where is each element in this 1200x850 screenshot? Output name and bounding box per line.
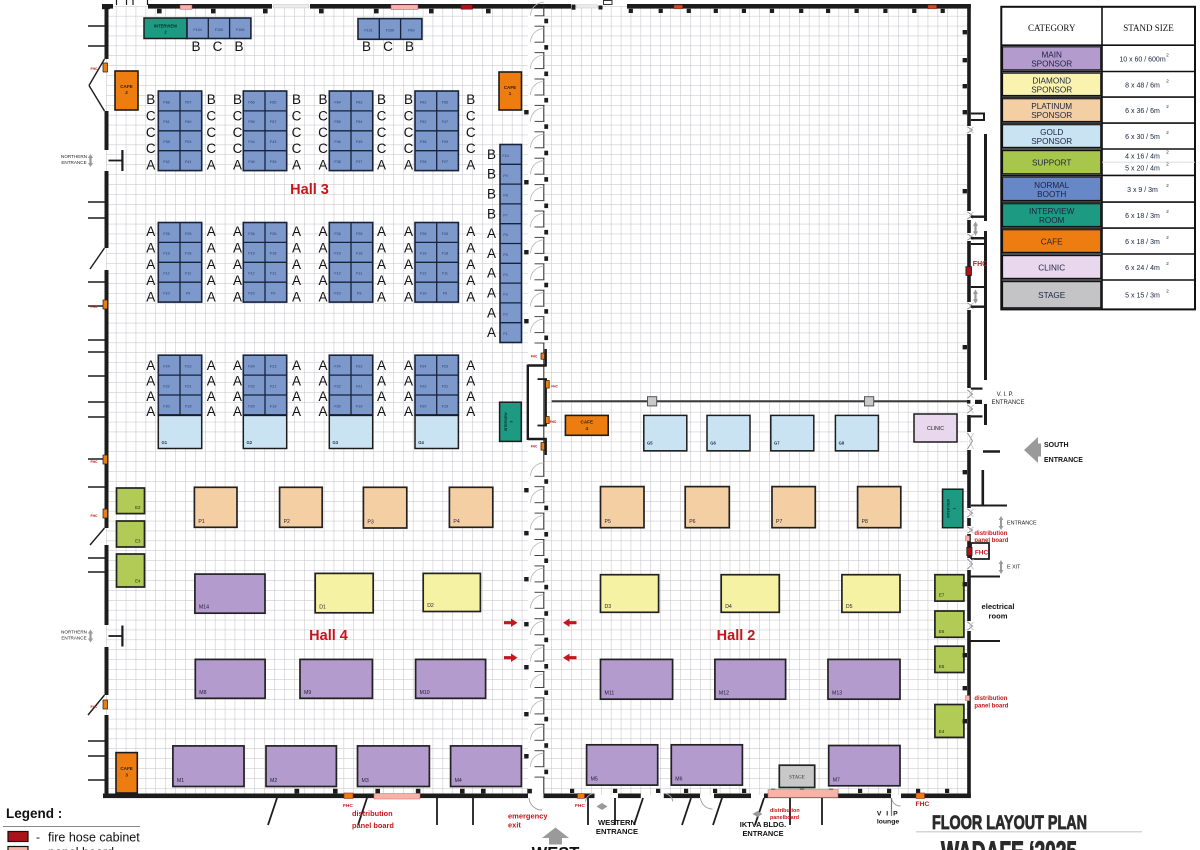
svg-text:F18: F18 — [442, 252, 448, 256]
svg-text:F25: F25 — [442, 232, 448, 236]
svg-text:fire hose cabinet: fire hose cabinet — [48, 831, 140, 845]
svg-text:A: A — [146, 290, 155, 305]
svg-text:Legend :: Legend : — [6, 806, 62, 821]
svg-text:A: A — [404, 257, 413, 272]
svg-text:C: C — [233, 108, 243, 123]
svg-text:INTERVIEW: INTERVIEW — [947, 498, 951, 518]
svg-text:A: A — [318, 224, 327, 239]
svg-text:F18: F18 — [356, 252, 362, 256]
svg-text:A: A — [377, 257, 386, 272]
svg-text:ENTRANCE: ENTRANCE — [742, 829, 783, 838]
svg-text:F12: F12 — [420, 272, 426, 276]
svg-text:A: A — [466, 257, 475, 272]
svg-text:F19: F19 — [270, 404, 276, 408]
svg-text:A: A — [466, 404, 475, 419]
svg-text:A: A — [487, 266, 496, 281]
svg-text:V. I. P.: V. I. P. — [997, 392, 1014, 398]
svg-text:Hall 3: Hall 3 — [290, 182, 329, 198]
svg-text:A: A — [318, 257, 327, 272]
svg-text:F26: F26 — [334, 232, 340, 236]
svg-text:A: A — [404, 404, 413, 419]
svg-text:ENTRANCE: ENTRANCE — [61, 160, 86, 165]
svg-text:A: A — [207, 224, 216, 239]
svg-text:F37: F37 — [356, 160, 362, 164]
svg-text:ENTRANCE: ENTRANCE — [991, 400, 1024, 406]
svg-text:B: B — [487, 147, 496, 162]
svg-text:F18: F18 — [270, 252, 276, 256]
svg-text:CAFE: CAFE — [120, 84, 133, 89]
svg-text:C: C — [377, 125, 387, 140]
svg-text:panel board: panel board — [974, 704, 1008, 710]
svg-text:exit: exit — [508, 821, 521, 830]
svg-text:A: A — [404, 224, 413, 239]
svg-text:F19: F19 — [420, 252, 426, 256]
svg-text:F21: F21 — [185, 384, 191, 388]
svg-text:CLINIC: CLINIC — [1038, 264, 1065, 273]
svg-text:A: A — [233, 257, 242, 272]
svg-text:C: C — [377, 141, 387, 156]
svg-text:BOOTH: BOOTH — [1037, 190, 1066, 199]
svg-text:Hall 2: Hall 2 — [717, 628, 756, 644]
svg-text:A: A — [404, 373, 413, 388]
svg-text:4 x 16 / 4m: 4 x 16 / 4m — [1125, 154, 1160, 161]
svg-text:distribution: distribution — [352, 809, 393, 818]
svg-text:A: A — [404, 158, 413, 173]
svg-text:B: B — [377, 92, 386, 107]
svg-text:A: A — [292, 389, 301, 404]
svg-text:A: A — [292, 373, 301, 388]
svg-text:F11: F11 — [185, 272, 191, 276]
svg-text:electrical: electrical — [982, 602, 1015, 611]
svg-text:CAFE: CAFE — [504, 85, 517, 90]
svg-text:F5: F5 — [503, 253, 507, 257]
svg-text:F6: F6 — [503, 233, 507, 237]
svg-text:A: A — [318, 404, 327, 419]
svg-text:FHC: FHC — [551, 385, 558, 389]
svg-text:A: A — [487, 286, 496, 301]
svg-text:F63: F63 — [356, 100, 362, 104]
svg-text:F105: F105 — [215, 28, 223, 32]
svg-text:F19: F19 — [185, 404, 191, 408]
svg-text:P6: P6 — [689, 519, 695, 525]
svg-text:M3: M3 — [362, 778, 369, 784]
svg-text:B: B — [487, 206, 496, 221]
svg-text:B: B — [146, 92, 155, 107]
svg-text:M8: M8 — [199, 690, 206, 696]
svg-text:F9: F9 — [503, 174, 507, 178]
svg-text:F20: F20 — [163, 404, 169, 408]
svg-text:F1: F1 — [503, 332, 507, 336]
svg-text:F9: F9 — [186, 292, 190, 296]
svg-text:MAIN: MAIN — [1041, 50, 1062, 59]
svg-text:distribution: distribution — [974, 696, 1007, 702]
svg-text:ROOM: ROOM — [1039, 216, 1065, 225]
svg-text:C: C — [233, 141, 243, 156]
svg-text:IKTVA BLDG.: IKTVA BLDG. — [740, 820, 786, 829]
svg-text:NORMAL: NORMAL — [1034, 181, 1069, 190]
svg-text:ENTRANCE: ENTRANCE — [1007, 521, 1037, 527]
svg-text:C: C — [233, 125, 243, 140]
svg-text:F24: F24 — [163, 365, 169, 369]
svg-text:SPONSOR: SPONSOR — [1031, 137, 1072, 146]
svg-text:FHC: FHC — [91, 514, 99, 518]
svg-text:B: B — [234, 39, 243, 54]
svg-text:A: A — [466, 240, 475, 255]
svg-text:F55: F55 — [334, 120, 340, 124]
svg-text:B: B — [466, 92, 475, 107]
svg-text:M6: M6 — [675, 777, 682, 783]
svg-text:F9: F9 — [443, 292, 447, 296]
svg-text:F10: F10 — [248, 292, 254, 296]
svg-text:F52: F52 — [420, 120, 426, 124]
svg-text:F56: F56 — [442, 100, 448, 104]
svg-text:A: A — [318, 389, 327, 404]
svg-text:F23: F23 — [442, 365, 448, 369]
svg-text:F99: F99 — [408, 29, 414, 33]
svg-text:A: A — [207, 373, 216, 388]
svg-text:F101: F101 — [364, 29, 372, 33]
svg-text:F43: F43 — [270, 140, 276, 144]
svg-text:B: B — [318, 92, 327, 107]
svg-text:F26: F26 — [248, 232, 254, 236]
svg-text:2: 2 — [125, 90, 128, 95]
svg-text:A: A — [377, 290, 386, 305]
svg-text:A: A — [292, 290, 301, 305]
svg-text:distribution: distribution — [770, 808, 800, 814]
svg-text:F19: F19 — [442, 404, 448, 408]
svg-text:A: A — [377, 273, 386, 288]
svg-text:3: 3 — [510, 421, 514, 423]
svg-text:C: C — [404, 108, 414, 123]
svg-text:A: A — [292, 257, 301, 272]
svg-text:B: B — [404, 92, 413, 107]
svg-text:M11: M11 — [605, 691, 615, 697]
svg-text:F65: F65 — [270, 100, 276, 104]
svg-text:F10: F10 — [502, 154, 508, 158]
svg-text:STAGE: STAGE — [1038, 291, 1066, 300]
svg-text:B: B — [487, 167, 496, 182]
svg-text:F36: F36 — [420, 140, 426, 144]
svg-text:F4: F4 — [503, 273, 507, 277]
svg-text:A: A — [466, 358, 475, 373]
svg-text:A: A — [377, 158, 386, 173]
svg-text:F57: F57 — [270, 120, 276, 124]
svg-text:A: A — [377, 373, 386, 388]
svg-text:A: A — [146, 389, 155, 404]
svg-text:C: C — [377, 108, 387, 123]
svg-text:F20: F20 — [248, 404, 254, 408]
svg-text:F19: F19 — [334, 252, 340, 256]
svg-text:FHC: FHC — [973, 261, 987, 268]
svg-text:F22: F22 — [420, 384, 426, 388]
svg-text:F12: F12 — [334, 272, 340, 276]
svg-text:ENTRANCE: ENTRANCE — [1044, 457, 1083, 464]
svg-text:F19: F19 — [248, 252, 254, 256]
svg-text:10 x 60 / 600m: 10 x 60 / 600m — [1119, 56, 1165, 63]
svg-text:CAFE: CAFE — [581, 420, 594, 425]
svg-text:A: A — [487, 226, 496, 241]
svg-text:G8: G8 — [839, 441, 845, 446]
svg-text:FHC: FHC — [91, 67, 99, 71]
svg-text:A: A — [404, 389, 413, 404]
svg-text:F21: F21 — [270, 384, 276, 388]
svg-text:F23: F23 — [356, 365, 362, 369]
svg-text:A: A — [233, 273, 242, 288]
svg-text:FHC: FHC — [975, 550, 989, 557]
svg-text:A: A — [146, 257, 155, 272]
svg-text:F44: F44 — [248, 140, 254, 144]
svg-text:A: A — [292, 240, 301, 255]
svg-text:M7: M7 — [833, 777, 840, 783]
svg-text:F20: F20 — [334, 404, 340, 408]
svg-text:B: B — [207, 92, 216, 107]
svg-text:A: A — [233, 240, 242, 255]
svg-text:E XIT: E XIT — [1007, 565, 1021, 571]
svg-text:A: A — [233, 373, 242, 388]
svg-text:A: A — [377, 404, 386, 419]
svg-text:C: C — [292, 108, 302, 123]
svg-text:F41: F41 — [185, 160, 191, 164]
svg-text:SPONSOR: SPONSOR — [1031, 59, 1072, 68]
svg-text:NORTHERN: NORTHERN — [61, 154, 87, 159]
svg-text:SOUTH: SOUTH — [1044, 442, 1069, 449]
svg-text:A: A — [146, 158, 155, 173]
svg-text:CLINIC: CLINIC — [927, 426, 944, 432]
svg-text:F106: F106 — [236, 28, 244, 32]
svg-text:PLATINUM: PLATINUM — [1031, 102, 1072, 111]
svg-text:F19: F19 — [356, 404, 362, 408]
svg-text:F2: F2 — [503, 312, 507, 316]
svg-text:C: C — [318, 108, 328, 123]
svg-text:A: A — [207, 158, 216, 173]
svg-text:C: C — [292, 141, 302, 156]
svg-text:M5: M5 — [591, 777, 598, 783]
svg-text:A: A — [466, 273, 475, 288]
svg-text:WESTERN: WESTERN — [598, 818, 636, 827]
svg-text:A: A — [146, 404, 155, 419]
svg-text:1: 1 — [509, 91, 512, 96]
svg-text:A: A — [487, 246, 496, 261]
svg-text:FHC: FHC — [91, 705, 99, 709]
svg-text:G6: G6 — [710, 441, 716, 446]
svg-text:5 x 20 / 4m: 5 x 20 / 4m — [1125, 166, 1160, 173]
svg-text:A: A — [207, 290, 216, 305]
svg-text:M1: M1 — [177, 778, 184, 784]
svg-text:F104: F104 — [193, 28, 201, 32]
svg-text:B: B — [191, 39, 200, 54]
svg-text:A: A — [377, 224, 386, 239]
svg-text:F22: F22 — [248, 384, 254, 388]
svg-text:lounge: lounge — [877, 819, 899, 826]
svg-text:A: A — [377, 240, 386, 255]
svg-text:A: A — [146, 358, 155, 373]
svg-text:C: C — [466, 125, 476, 140]
svg-text:INTERVIEW: INTERVIEW — [1029, 207, 1075, 216]
svg-text:F11: F11 — [270, 272, 276, 276]
svg-text:G2: G2 — [247, 440, 253, 445]
svg-text:F67: F67 — [185, 100, 191, 104]
svg-text:F64: F64 — [334, 100, 340, 104]
svg-text:F47: F47 — [442, 120, 448, 124]
svg-text:CAFE: CAFE — [1041, 238, 1063, 247]
svg-text:F54: F54 — [356, 120, 362, 124]
svg-text:D4: D4 — [725, 604, 732, 610]
svg-text:FLOOR LAYOUT PLAN: FLOOR LAYOUT PLAN — [932, 813, 1087, 834]
svg-text:M14: M14 — [199, 605, 209, 611]
svg-text:F24: F24 — [334, 365, 340, 369]
svg-text:E3: E3 — [135, 539, 141, 544]
svg-text:WEST: WEST — [532, 845, 580, 850]
svg-text:B: B — [233, 92, 242, 107]
svg-text:A: A — [404, 290, 413, 305]
svg-text:P2: P2 — [284, 519, 290, 525]
svg-text:A: A — [318, 290, 327, 305]
svg-text:panel board: panel board — [974, 538, 1008, 544]
svg-text:C: C — [404, 125, 414, 140]
svg-text:C: C — [466, 108, 476, 123]
svg-text:A: A — [318, 240, 327, 255]
svg-text:A: A — [318, 358, 327, 373]
svg-text:B: B — [362, 39, 371, 54]
svg-text:F66: F66 — [248, 100, 254, 104]
svg-text:F42: F42 — [163, 160, 169, 164]
svg-text:6 x 18 / 3m: 6 x 18 / 3m — [1125, 213, 1160, 220]
svg-text:A: A — [292, 358, 301, 373]
svg-text:F60: F60 — [185, 120, 191, 124]
svg-text:A: A — [466, 224, 475, 239]
svg-text:A: A — [377, 389, 386, 404]
svg-text:FHC: FHC — [916, 801, 930, 808]
svg-text:F68: F68 — [163, 100, 169, 104]
svg-text:G1: G1 — [162, 440, 168, 445]
svg-text:6 x 36 / 6m: 6 x 36 / 6m — [1125, 108, 1160, 115]
svg-text:F21: F21 — [442, 384, 448, 388]
svg-text:F28: F28 — [420, 160, 426, 164]
svg-text:G7: G7 — [774, 441, 780, 446]
svg-text:F38: F38 — [334, 160, 340, 164]
svg-text:P5: P5 — [605, 519, 611, 525]
svg-text:F7: F7 — [503, 213, 507, 217]
svg-text:6 x 24 / 4m: 6 x 24 / 4m — [1125, 265, 1160, 272]
svg-text:panel board: panel board — [352, 821, 394, 830]
svg-text:F21: F21 — [356, 384, 362, 388]
svg-text:SPONSOR: SPONSOR — [1031, 85, 1072, 94]
svg-text:A: A — [233, 389, 242, 404]
svg-text:A: A — [207, 389, 216, 404]
svg-text:FHC: FHC — [531, 355, 538, 359]
svg-text:A: A — [146, 373, 155, 388]
svg-text:C: C — [206, 125, 216, 140]
svg-text:C: C — [146, 125, 156, 140]
svg-text:B: B — [487, 187, 496, 202]
svg-text:DIAMOND: DIAMOND — [1032, 76, 1071, 85]
svg-text:F59: F59 — [248, 120, 254, 124]
svg-text:A: A — [146, 273, 155, 288]
svg-text:C: C — [206, 141, 216, 156]
svg-text:M9: M9 — [304, 690, 311, 696]
svg-text:P1: P1 — [198, 519, 204, 525]
svg-text:SUPPORT: SUPPORT — [1032, 159, 1071, 168]
svg-text:A: A — [466, 389, 475, 404]
svg-text:A: A — [233, 290, 242, 305]
svg-text:F18: F18 — [185, 252, 191, 256]
svg-text:NORTHERN: NORTHERN — [61, 630, 87, 635]
svg-text:panel board: panel board — [48, 846, 114, 850]
svg-text:B: B — [292, 92, 301, 107]
svg-text:WADAFE ‘2025: WADAFE ‘2025 — [941, 837, 1077, 850]
svg-text:M12: M12 — [719, 691, 729, 697]
svg-text:FHC: FHC — [575, 803, 585, 809]
svg-text:E4: E4 — [939, 729, 945, 734]
svg-text:FHC: FHC — [550, 420, 557, 424]
svg-text:M10: M10 — [420, 690, 430, 696]
svg-text:A: A — [318, 373, 327, 388]
svg-text:1: 1 — [953, 507, 957, 509]
svg-text:F11: F11 — [442, 272, 448, 276]
svg-text:distribution: distribution — [974, 531, 1007, 537]
svg-text:4: 4 — [586, 426, 589, 431]
svg-text:F40: F40 — [248, 160, 254, 164]
svg-text:6 x 30 / 5m: 6 x 30 / 5m — [1125, 134, 1160, 141]
svg-text:A: A — [207, 273, 216, 288]
svg-text:F10: F10 — [334, 292, 340, 296]
svg-text:A: A — [292, 404, 301, 419]
svg-text:6 x 18 / 3m: 6 x 18 / 3m — [1125, 239, 1160, 246]
svg-text:CATEGORY: CATEGORY — [1028, 23, 1076, 33]
svg-text:E6: E6 — [939, 629, 945, 634]
svg-text:F10: F10 — [420, 292, 426, 296]
svg-text:F53: F53 — [185, 140, 191, 144]
svg-text:FHC: FHC — [531, 445, 538, 449]
svg-text:E2: E2 — [135, 505, 141, 510]
svg-text:E5: E5 — [939, 664, 945, 669]
svg-text:B: B — [405, 39, 414, 54]
svg-text:D3: D3 — [605, 604, 612, 610]
svg-text:E4: E4 — [135, 579, 141, 584]
svg-text:C: C — [466, 141, 476, 156]
svg-text:F10: F10 — [163, 292, 169, 296]
svg-text:A: A — [377, 358, 386, 373]
svg-text:D5: D5 — [846, 604, 853, 610]
svg-text:A: A — [292, 158, 301, 173]
svg-text:C: C — [213, 39, 223, 54]
svg-text:A: A — [487, 325, 496, 340]
svg-text:A: A — [207, 240, 216, 255]
svg-text:M2: M2 — [270, 778, 277, 784]
svg-text:GOLD: GOLD — [1040, 128, 1063, 137]
svg-text:F25: F25 — [185, 232, 191, 236]
svg-text:F12: F12 — [163, 272, 169, 276]
svg-text:C: C — [383, 39, 393, 54]
svg-text:3: 3 — [125, 773, 128, 778]
svg-text:P3: P3 — [367, 520, 373, 526]
svg-text:ENTRANCE: ENTRANCE — [596, 827, 638, 836]
svg-text:A: A — [404, 240, 413, 255]
svg-text:F27: F27 — [442, 160, 448, 164]
svg-text:A: A — [146, 224, 155, 239]
svg-text:STAGE: STAGE — [789, 776, 805, 781]
svg-text:G4: G4 — [418, 440, 424, 445]
svg-text:5 x 15 / 3m: 5 x 15 / 3m — [1125, 293, 1160, 300]
svg-text:F58: F58 — [163, 140, 169, 144]
svg-text:F12: F12 — [248, 272, 254, 276]
svg-text:SPONSOR: SPONSOR — [1031, 111, 1072, 120]
svg-text:F19: F19 — [163, 252, 169, 256]
svg-text:emergency: emergency — [508, 812, 548, 821]
svg-text:F9: F9 — [271, 292, 275, 296]
svg-text:F3: F3 — [503, 293, 507, 297]
svg-text:A: A — [207, 358, 216, 373]
